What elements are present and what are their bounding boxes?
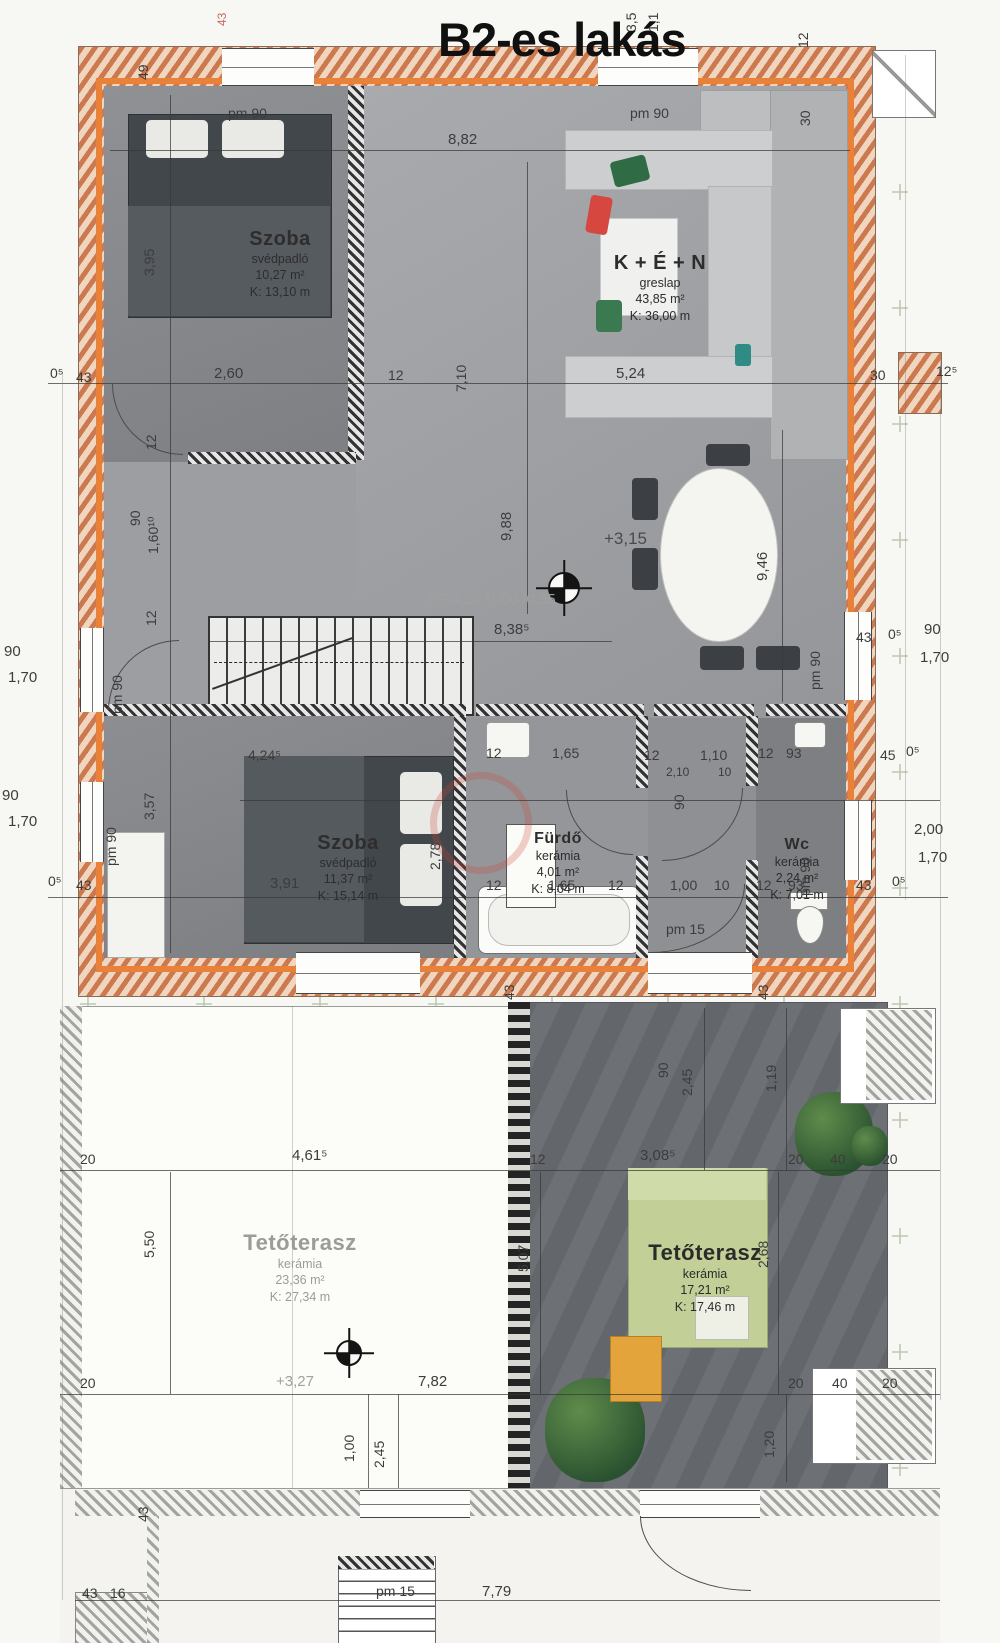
dim-top-left: 49 [136,64,150,80]
dim-strip: 16 [110,1586,126,1600]
terrace-window-1-hatch [866,1010,932,1100]
dim-terr1: 3,08⁵ [640,1148,675,1163]
guide-line [940,360,941,1400]
guide-line [905,55,906,900]
room-name: Szoba [268,832,428,855]
dim-terr2: 40 [832,1376,848,1390]
room-perimeter: K: 8,04 m [498,881,618,897]
dim-terr1: 40 [830,1152,846,1166]
dim-bath: 93 [786,746,802,760]
dimline [110,150,850,151]
dim-bath: 4,24⁵ [248,748,281,762]
dim-bottom: 0⁵ [48,874,62,888]
dim-terr2: 20 [788,1376,804,1390]
dim-mid: 12 [388,368,404,382]
dimline [786,1394,787,1482]
dim-terr-v: 90 [656,1062,670,1078]
room-area: 23,36 m² [190,1272,410,1288]
room-label-wc: Wc kerámia 2,24 m² K: 7,01 m [742,836,852,903]
dim-bath-sub: 10 [718,766,731,778]
dim-terr2: 20 [882,1376,898,1390]
room-floor-finish: kerámia [190,1256,410,1272]
dim-bath: 45 [880,748,896,762]
parapet-marker: pm 90 [808,651,822,690]
dim-right-win: 1,70 [918,850,947,865]
dim-right-win: 90 [924,622,941,637]
dim-right-win: 2,00 [914,822,943,837]
dim-col-left: 3,95 [142,249,156,276]
room-floor-finish: svédpadló [268,855,428,871]
dim-bath: 12 [644,748,660,762]
room-area: 43,85 m² [570,291,750,307]
window-left-2 [80,782,104,862]
dim-bottom: 10 [714,878,730,892]
dim-terr-v: 1,19 [764,1065,778,1092]
parapet-marker: pm 15 [376,1584,415,1598]
room-area: 4,01 m² [498,864,618,880]
dim-left-win: 90 [2,788,19,803]
dim-right-v1: 12 [796,32,810,48]
room-name: Tetőterasz [190,1230,410,1256]
dim-bath: 1,10 [700,748,727,762]
dim-bottom: 43 [76,878,92,892]
room-floor-finish: kerámia [600,1266,810,1282]
dim-mid: 7,10 [454,365,468,392]
room-floor-finish: kerámia [498,848,618,864]
room-label-terasz2: Tetőterasz kerámia 17,21 m² K: 17,46 m [600,1240,810,1315]
bottom-strip-wall-v [147,1516,159,1643]
dim-mid: 30 [870,368,886,382]
parapet-marker: pm 90 [104,827,118,866]
dim-center-height: 9,46 [755,552,770,581]
dim-top-red: 43 [216,13,228,26]
dimline [398,1394,399,1488]
dim-terr-v: 1,20 [762,1431,776,1458]
bottom-strip-stairs-wall [338,1556,434,1569]
dim-terr-v: 5,50 [142,1231,156,1258]
dim-bath: 90 [672,794,686,810]
bottom-strip-door [640,1490,760,1518]
dim-terr1: 20 [788,1152,804,1166]
dim-right-win: 1,70 [920,650,949,665]
parapet-marker: pm 15 [666,922,705,936]
window-top-left [222,48,314,86]
pf-line-label: PF 4,25 /1,00 /0,35 [428,592,556,607]
dimline [60,1394,940,1395]
dimline [704,1008,705,1170]
shaft-top-right [872,50,936,118]
dim-mid: 5,24 [616,366,645,381]
dim-bottom: 43 [856,878,872,892]
room-floor-finish: kerámia [742,854,852,870]
room-name: Szoba [200,228,360,251]
room-area: 11,37 m² [268,871,428,887]
window-left-1 [80,628,104,712]
dimline [527,162,528,614]
room-perimeter: K: 36,00 m [570,308,750,324]
parapet-marker: pm 90 [110,675,124,714]
dim-terr-v: 2,45 [680,1069,694,1096]
terrace-left-wall [60,1006,82,1488]
dim-bottom: 0⁵ [892,874,906,888]
room-label-szoba1: Szoba svédpadló 10,27 m² K: 13,10 m [200,228,360,300]
window-right-1 [844,612,872,700]
dim-bath: 12 [486,746,502,760]
dim-bath: 1,65 [552,746,579,760]
dim-terr1: 20 [882,1152,898,1166]
dimline [170,95,171,953]
wall-tick: 43 [502,984,516,1000]
level-value-main: +3,15 [604,530,647,547]
dim-terr-v: 5,07 [516,1245,530,1272]
dimline [210,641,612,642]
room-perimeter: K: 7,01 m [742,887,852,903]
room-label-terasz1: Tetőterasz kerámia 23,36 m² K: 27,34 m [190,1230,410,1305]
dim-mid: 12⁵ [936,364,957,378]
room-floor-finish: greslap [570,275,750,291]
terrace-lounge-chair [610,1336,662,1402]
bottom-strip-window [360,1490,470,1518]
dimline [75,1600,940,1601]
dimline [786,1008,787,1170]
dim-terr1: 4,61⁵ [292,1148,327,1163]
room-area: 2,24 m² [742,870,852,886]
dimline [60,1170,940,1171]
dim-strip: 43 [82,1586,98,1600]
dim-right-win: 43 [856,630,872,644]
door-bottom-terrace [648,952,752,994]
dim-col-left: 90 [128,510,142,526]
room-perimeter: K: 13,10 m [200,284,360,300]
dim-center-height: 9,88 [499,512,514,541]
dim-col-left: 12 [144,434,158,450]
room-label-szoba2: Szoba svédpadló 11,37 m² K: 15,14 m [268,832,428,904]
dim-top-width: 8,82 [448,132,477,147]
wall-tick: 43 [756,984,770,1000]
level-value-terrace: +3,27 [276,1374,314,1389]
dim-bath-sub: 2,10 [666,766,689,778]
dim-mid: 2,60 [214,366,243,381]
level-marker-terrace [336,1340,362,1366]
room-name: K + É + N [570,252,750,275]
window-bottom [296,952,420,994]
dim-col-left: 12 [144,610,158,626]
room-name: Tetőterasz [600,1240,810,1266]
room-area: 17,21 m² [600,1282,810,1298]
room-perimeter: K: 27,34 m [190,1289,410,1305]
terrace-sofa-back [628,1168,766,1200]
wall-tick: 43 [136,1506,150,1522]
dim-terr-v: 1,00 [342,1435,356,1462]
dim-mid: 0⁵ [50,366,64,380]
dim-bottom: 1,00 [670,878,697,892]
dim-terr1: 12 [530,1152,546,1166]
dim-terr-v: 2,45 [372,1441,386,1468]
room-label-furdo: Fürdő kerámia 4,01 m² K: 8,04 m [498,830,618,897]
dimline [368,1394,369,1488]
dim-right-v2: 30 [798,110,812,126]
dim-terr2: 7,82 [418,1374,447,1389]
parapet-marker: pm 90 [228,106,267,120]
dimline [48,383,948,384]
dim-col-left: 3,57 [142,793,156,820]
dim-stair-width: 8,38⁵ [494,622,529,637]
dimline [240,800,940,801]
dimline [170,1172,171,1394]
stair-walkline [214,662,464,663]
dim-left-win: 90 [4,644,21,659]
dim-col-left: 1,60¹⁰ [146,516,160,554]
room-perimeter: K: 17,46 m [600,1299,810,1315]
floor-plan-canvas: +3,15 PF 4,25 /1,00 /0,35 Szoba svédpadl… [0,0,1000,1643]
dim-left-win: 1,70 [8,814,37,829]
dim-mid: 43 [76,370,92,384]
dim-szoba2-height: 2,78 [428,843,442,870]
dim-left-win: 1,70 [8,670,37,685]
bottom-strip-wall [75,1490,940,1516]
dim-strip: 7,79 [482,1584,511,1599]
room-name: Fürdő [498,830,618,848]
dim-bath: 12 [758,746,774,760]
room-name: Wc [742,836,852,854]
page-title: B2-es lakás [438,12,686,67]
guide-line [62,372,63,1600]
dim-bath: 0⁵ [906,744,920,758]
parapet-marker: pm 90 [630,106,669,120]
room-area: 10,27 m² [200,267,360,283]
dim-right-win: 0⁵ [888,627,902,641]
room-perimeter: K: 15,14 m [268,888,428,904]
room-floor-finish: svédpadló [200,251,360,267]
dimline [782,430,783,702]
room-label-ken: K + É + N greslap 43,85 m² K: 36,00 m [570,252,750,324]
dimline [540,1172,541,1394]
dim-terr1: 20 [80,1152,96,1166]
dim-terr2: 20 [80,1376,96,1390]
